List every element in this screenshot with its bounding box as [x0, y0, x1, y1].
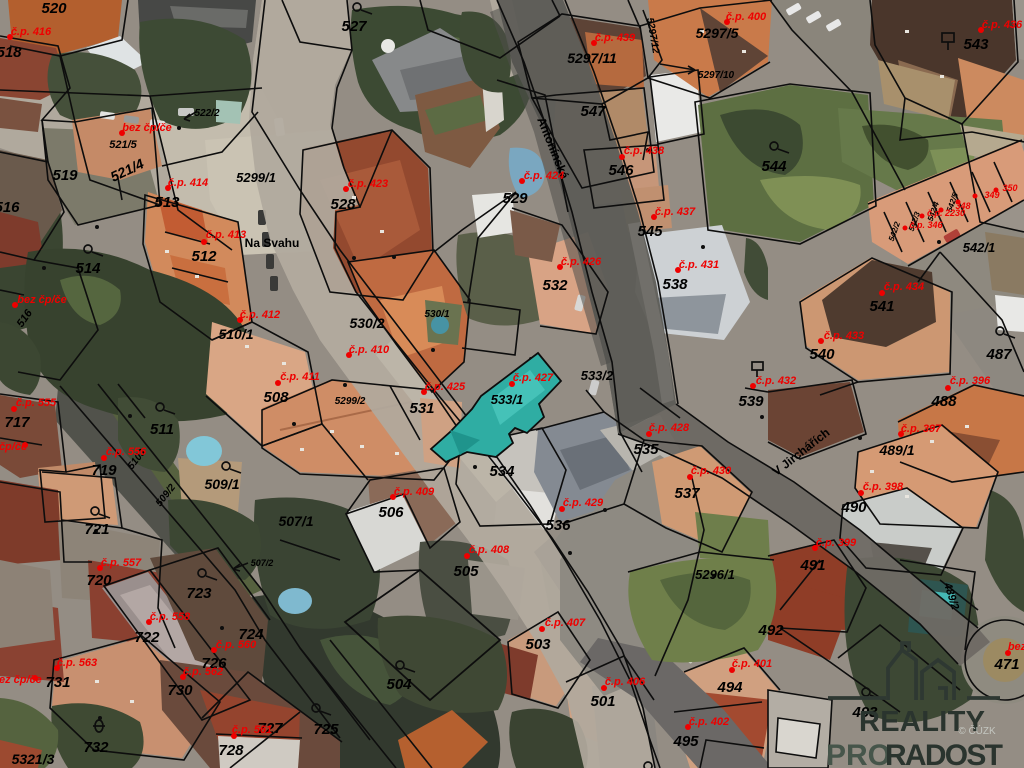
svg-text:717: 717	[4, 414, 30, 431]
svg-text:719: 719	[91, 462, 117, 479]
svg-text:545: 545	[637, 223, 663, 240]
svg-text:494: 494	[716, 679, 743, 696]
svg-text:5299/2: 5299/2	[335, 396, 366, 407]
svg-text:č.p. 396: č.p. 396	[950, 375, 991, 387]
svg-text:527: 527	[341, 18, 367, 35]
svg-text:728: 728	[218, 742, 244, 759]
svg-text:č.p. 562: č.p. 562	[183, 666, 223, 678]
svg-text:491: 491	[799, 557, 825, 574]
svg-text:547: 547	[580, 103, 606, 120]
svg-text:506: 506	[378, 504, 404, 521]
svg-text:529: 529	[502, 190, 528, 207]
svg-text:507/1: 507/1	[278, 513, 313, 529]
svg-text:722: 722	[134, 629, 160, 646]
svg-text:č.p. 397: č.p. 397	[901, 423, 942, 435]
svg-text:č.p. 410: č.p. 410	[349, 344, 390, 356]
svg-text:541: 541	[869, 298, 894, 315]
svg-text:© ČÚZK: © ČÚZK	[958, 724, 996, 737]
svg-text:Na Svahu: Na Svahu	[245, 236, 300, 250]
svg-text:č.p. 407: č.p. 407	[545, 617, 586, 629]
svg-text:č.p. 432: č.p. 432	[756, 375, 796, 387]
svg-text:č.p. 433: č.p. 433	[824, 330, 864, 342]
svg-text:č.p. 399: č.p. 399	[816, 537, 857, 549]
svg-text:č.p. 423: č.p. 423	[348, 178, 388, 190]
svg-text:536: 536	[545, 517, 571, 534]
svg-text:533/1: 533/1	[491, 392, 524, 407]
svg-text:495: 495	[672, 733, 699, 750]
svg-text:č.p. 425: č.p. 425	[425, 381, 466, 393]
svg-text:PRO: PRO	[826, 739, 891, 768]
svg-text:490: 490	[840, 499, 867, 516]
svg-text:540: 540	[809, 346, 835, 363]
svg-text:542/1: 542/1	[963, 240, 996, 255]
svg-text:520: 520	[41, 0, 67, 17]
svg-text:530/1: 530/1	[424, 309, 449, 320]
svg-text:č.p. 398: č.p. 398	[863, 481, 904, 493]
svg-text:509/1: 509/1	[204, 476, 239, 492]
svg-text:508: 508	[263, 389, 289, 406]
svg-text:č.p. 557: č.p. 557	[101, 557, 142, 569]
svg-text:č.p. 438: č.p. 438	[624, 145, 665, 157]
svg-text:725: 725	[313, 721, 339, 738]
svg-text:č.p. 401: č.p. 401	[732, 658, 772, 670]
svg-text:5296/1: 5296/1	[695, 567, 735, 582]
svg-text:č.p. 424: č.p. 424	[524, 170, 564, 182]
svg-text:519: 519	[52, 167, 78, 184]
svg-text:471: 471	[993, 656, 1019, 673]
svg-text:532: 532	[542, 277, 568, 294]
svg-text:505: 505	[453, 563, 479, 580]
svg-text:492: 492	[757, 622, 784, 639]
svg-text:518: 518	[0, 44, 22, 61]
svg-text:512: 512	[191, 248, 217, 265]
svg-text:č.p. 434: č.p. 434	[884, 281, 924, 293]
svg-text:č.p. 437: č.p. 437	[655, 206, 696, 218]
svg-text:514: 514	[75, 260, 101, 277]
svg-text:č.p. 429: č.p. 429	[563, 497, 604, 509]
svg-text:č.p. 413: č.p. 413	[206, 229, 246, 241]
svg-text:504: 504	[386, 676, 412, 693]
svg-text:bez čp/če: bez čp/če	[17, 294, 67, 306]
svg-text:č.p. 408: č.p. 408	[469, 544, 510, 556]
svg-text:č.p. 561: č.p. 561	[232, 724, 272, 736]
svg-text:732: 732	[83, 739, 109, 756]
svg-text:č.p. 563: č.p. 563	[57, 657, 97, 669]
svg-text:538: 538	[662, 276, 688, 293]
svg-text:č.p. 430: č.p. 430	[691, 465, 732, 477]
svg-text:č.p. 431: č.p. 431	[679, 259, 719, 271]
svg-text:5299/1: 5299/1	[236, 170, 276, 185]
svg-text:511: 511	[150, 421, 174, 438]
svg-text:534: 534	[489, 463, 515, 480]
svg-text:5297/11: 5297/11	[567, 50, 617, 66]
svg-text:730: 730	[167, 682, 193, 699]
svg-text:521/5: 521/5	[109, 139, 137, 151]
svg-text:531: 531	[409, 400, 434, 417]
svg-text:530/2: 530/2	[349, 315, 384, 331]
svg-text:5321/3: 5321/3	[12, 751, 55, 767]
svg-text:513: 513	[154, 194, 180, 211]
svg-text:č.p. 439: č.p. 439	[595, 32, 636, 44]
svg-text:č.p. 556: č.p. 556	[106, 446, 147, 458]
svg-text:507/2: 507/2	[251, 558, 274, 568]
svg-text:č.p. 427: č.p. 427	[513, 372, 554, 384]
svg-text:723: 723	[186, 585, 212, 602]
svg-text:510/1: 510/1	[218, 326, 253, 342]
svg-text:č.p. 428: č.p. 428	[649, 422, 690, 434]
svg-text:720: 720	[86, 572, 112, 589]
svg-text:č.p. 560: č.p. 560	[216, 639, 257, 651]
svg-text:č.p. 402: č.p. 402	[689, 716, 729, 728]
svg-text:č.p. 436: č.p. 436	[982, 19, 1023, 31]
svg-text:RADOST: RADOST	[885, 739, 1003, 768]
svg-text:č.p. 414: č.p. 414	[168, 177, 208, 189]
svg-text:č.p. 558: č.p. 558	[150, 611, 191, 623]
svg-text:č.p. 409: č.p. 409	[394, 486, 435, 498]
svg-text:489/1: 489/1	[878, 442, 914, 458]
svg-text:5297/10: 5297/10	[698, 70, 735, 81]
svg-text:546: 546	[608, 162, 634, 179]
svg-text:č.p. 412: č.p. 412	[240, 309, 280, 321]
svg-text:535: 535	[633, 441, 659, 458]
svg-text:537: 537	[674, 485, 700, 502]
svg-text:5297/5: 5297/5	[696, 25, 739, 41]
svg-text:544: 544	[761, 158, 787, 175]
svg-text:487: 487	[985, 346, 1012, 363]
svg-text:543: 543	[963, 36, 989, 53]
svg-text:č.p. 411: č.p. 411	[280, 371, 320, 383]
svg-text:533/2: 533/2	[581, 368, 614, 383]
svg-text:522/2: 522/2	[194, 108, 219, 119]
svg-text:501: 501	[590, 693, 615, 710]
svg-text:č.p. 400: č.p. 400	[726, 11, 767, 23]
svg-text:528: 528	[330, 196, 356, 213]
svg-text:č.p. 426: č.p. 426	[561, 256, 602, 268]
svg-text:bez čp/če: bez čp/če	[122, 122, 172, 134]
svg-text:503: 503	[525, 636, 551, 653]
svg-text:č.p. 346: č.p. 346	[909, 220, 943, 230]
svg-text:350: 350	[1002, 183, 1017, 193]
svg-text:731: 731	[45, 674, 70, 691]
svg-text:č.p. 406: č.p. 406	[605, 676, 646, 688]
svg-text:721: 721	[84, 521, 109, 538]
svg-text:516: 516	[0, 199, 20, 216]
svg-text:č.p. 416: č.p. 416	[11, 26, 52, 38]
svg-text:č.p. 555: č.p. 555	[16, 397, 57, 409]
svg-text:539: 539	[738, 393, 764, 410]
svg-text:488: 488	[930, 393, 957, 410]
